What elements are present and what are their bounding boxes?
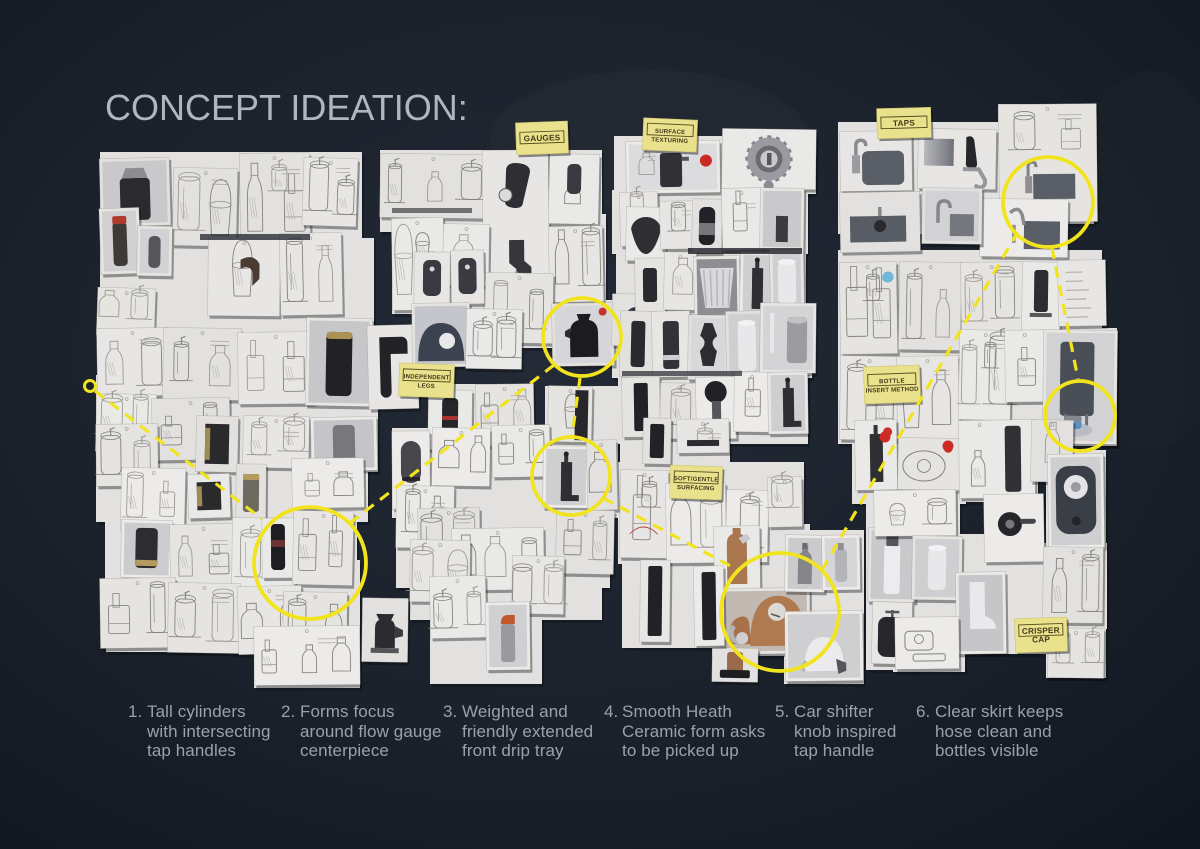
svg-text:SURFACING: SURFACING	[677, 484, 715, 492]
svg-text:BOTTLE: BOTTLE	[879, 377, 905, 385]
svg-text:LEGS: LEGS	[417, 382, 435, 390]
svg-text:GAUGES: GAUGES	[524, 133, 561, 143]
svg-text:TAPS: TAPS	[893, 119, 916, 129]
